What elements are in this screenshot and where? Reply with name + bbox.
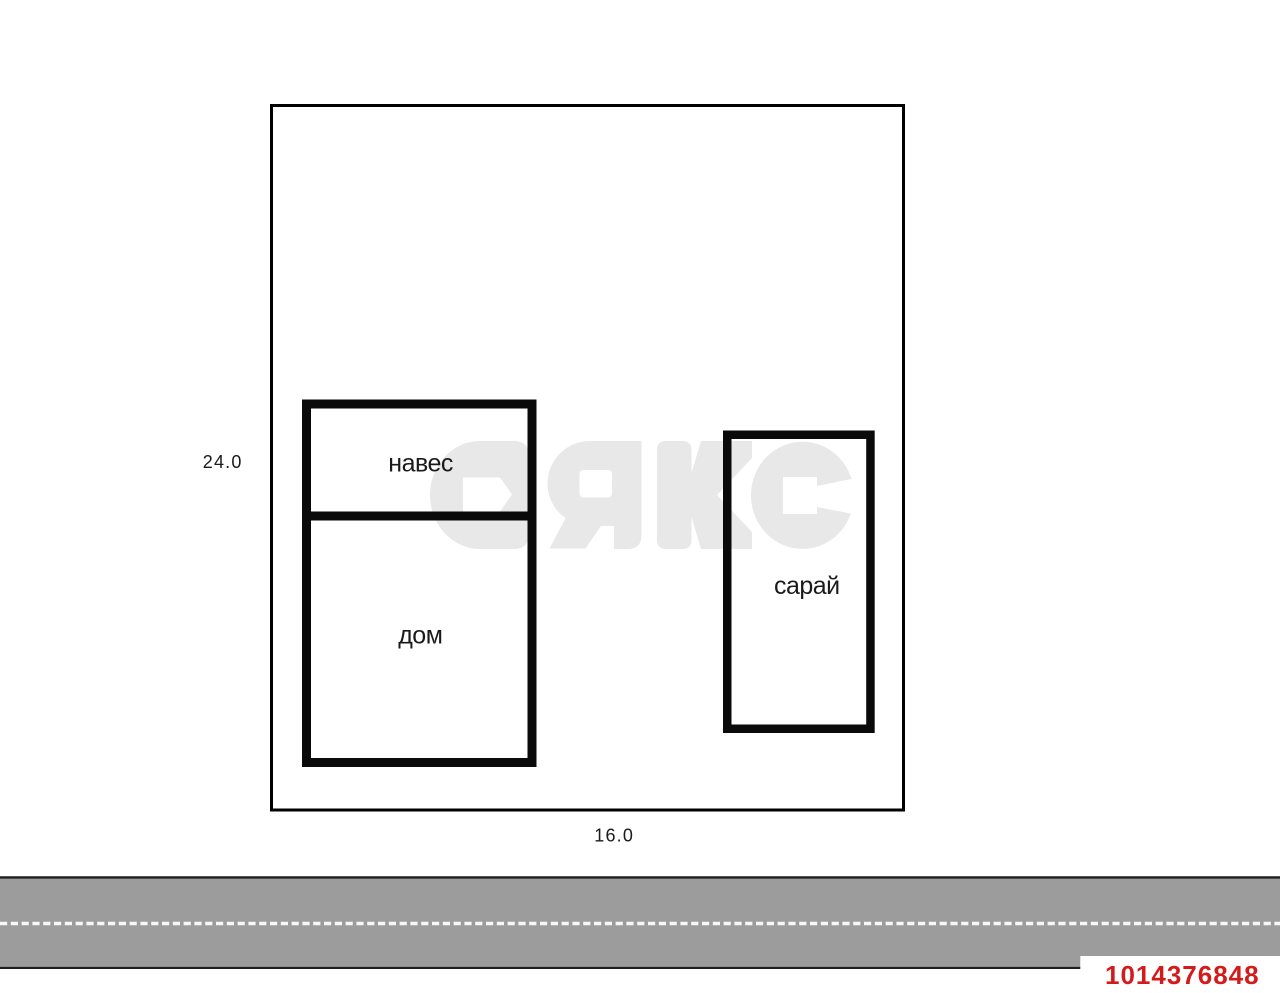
- svg-text:навес: навес: [388, 450, 453, 478]
- svg-text:24.0: 24.0: [203, 452, 243, 472]
- svg-text:сарай: сарай: [774, 572, 840, 600]
- svg-text:16.0: 16.0: [594, 825, 634, 845]
- svg-text:1014376848: 1014376848: [1105, 960, 1260, 990]
- svg-text:дом: дом: [398, 622, 442, 650]
